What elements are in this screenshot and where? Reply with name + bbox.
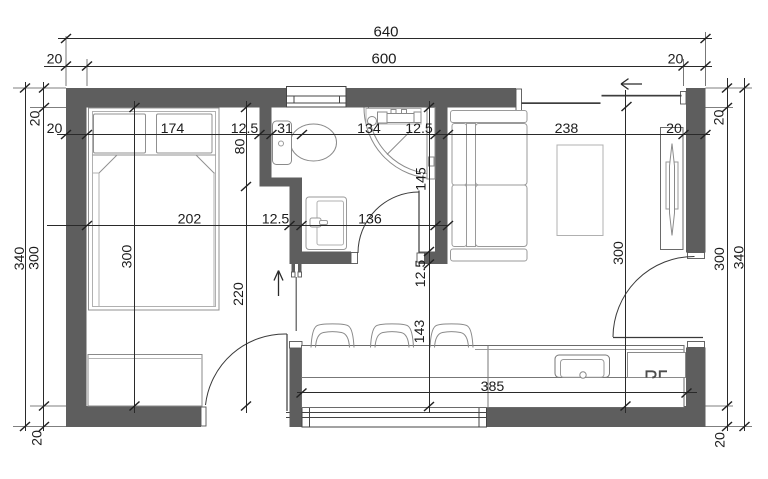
svg-text:300: 300 [27,246,43,270]
svg-text:300: 300 [611,241,627,265]
svg-text:20: 20 [47,121,63,137]
svg-text:385: 385 [481,379,505,395]
svg-text:20: 20 [30,430,46,446]
svg-text:31: 31 [277,121,293,137]
svg-text:20: 20 [28,111,44,127]
svg-text:174: 174 [161,121,185,137]
svg-text:20: 20 [668,52,684,68]
svg-text:600: 600 [371,51,396,68]
svg-text:12.5: 12.5 [262,212,290,228]
svg-text:640: 640 [373,24,398,41]
svg-text:80: 80 [233,139,249,155]
svg-text:202: 202 [178,212,202,228]
svg-text:20: 20 [713,432,729,448]
svg-text:143: 143 [412,320,428,344]
svg-text:134: 134 [357,121,381,137]
svg-text:20: 20 [712,110,728,126]
svg-text:145: 145 [414,167,430,191]
svg-text:20: 20 [666,121,682,137]
svg-text:300: 300 [120,245,136,269]
svg-text:238: 238 [555,121,579,137]
svg-text:220: 220 [231,282,247,306]
svg-text:340: 340 [732,246,748,270]
svg-text:20: 20 [47,52,63,68]
svg-text:12.5: 12.5 [413,260,429,288]
svg-text:12.5: 12.5 [405,121,433,137]
svg-text:300: 300 [712,247,728,271]
svg-text:12.5: 12.5 [231,121,259,137]
svg-text:136: 136 [358,212,382,228]
